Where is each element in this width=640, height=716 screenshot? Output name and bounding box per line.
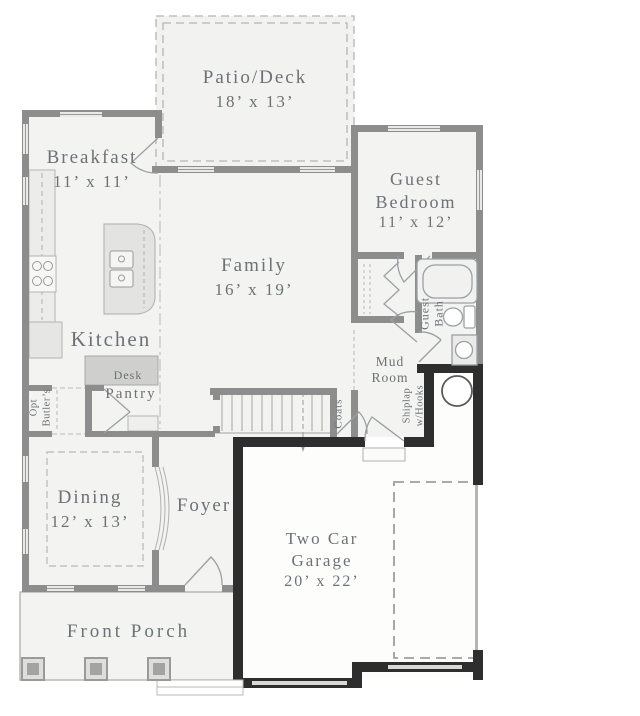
- guest-bedroom-name-1: Guest: [353, 168, 479, 191]
- patio-dims: 18’ x 13’: [156, 91, 354, 113]
- porch-columns: [22, 658, 170, 680]
- guest-bedroom-label: Guest Bedroom 11’ x 12’: [353, 168, 479, 233]
- coats-name: Coats: [332, 394, 345, 434]
- mud-room-name-1: Mud: [351, 354, 429, 370]
- garage-name-1: Two Car: [246, 528, 398, 550]
- garage-dims: 20’ x 22’: [246, 572, 398, 593]
- pantry-shelf: [128, 416, 158, 431]
- guest-bath-name-2: Bath: [432, 289, 446, 337]
- foyer-name: Foyer: [162, 494, 246, 519]
- front-porch-label: Front Porch: [20, 620, 237, 645]
- opt-butlers-name-2: Butler’s: [41, 383, 54, 433]
- patio-name: Patio/Deck: [156, 66, 354, 91]
- dining-dims: 12’ x 13’: [28, 511, 152, 533]
- dining-name: Dining: [28, 486, 152, 511]
- garage-name-2: Garage: [246, 550, 398, 572]
- water-heater: [442, 376, 472, 406]
- patio-label: Patio/Deck 18’ x 13’: [156, 66, 354, 113]
- coats-label: Coats: [332, 394, 345, 434]
- guest-bath-name-1: Guest: [418, 289, 432, 337]
- cooktop: [29, 256, 56, 292]
- guest-bath-label: Guest Bath: [418, 289, 447, 337]
- front-porch-name: Front Porch: [20, 620, 237, 645]
- dining-label: Dining 12’ x 13’: [28, 486, 152, 533]
- family-dims: 16’ x 19’: [158, 279, 350, 301]
- breakfast-label: Breakfast 11’ x 11’: [28, 146, 156, 193]
- garage-stoop: [363, 448, 405, 461]
- garage-door-right: [388, 665, 462, 669]
- pantry-name: Pantry: [102, 385, 160, 405]
- desk-name: Desk: [100, 368, 156, 384]
- garage-label: Two Car Garage 20’ x 22’: [246, 528, 398, 593]
- shiplap-name-2: w/Hooks: [414, 378, 427, 434]
- kitchen-name: Kitchen: [52, 326, 170, 353]
- floor-plan-canvas: Patio/Deck 18’ x 13’ Breakfast 11’ x 11’…: [0, 0, 640, 716]
- garage-door-left: [252, 681, 347, 685]
- desk-label: Desk: [100, 368, 156, 384]
- island-sink: [110, 251, 133, 268]
- family-name: Family: [158, 254, 350, 279]
- breakfast-name: Breakfast: [28, 146, 156, 171]
- opt-butlers-label: Opt Butler’s: [28, 383, 53, 433]
- kitchen-label: Kitchen: [52, 326, 170, 353]
- foyer-label: Foyer: [162, 494, 246, 519]
- shiplap-hooks-label: Shiplap w/Hooks: [401, 378, 426, 434]
- breakfast-dims: 11’ x 11’: [28, 171, 156, 193]
- guest-bedroom-dims: 11’ x 12’: [353, 213, 479, 233]
- guest-bedroom-name-2: Bedroom: [353, 191, 479, 214]
- shiplap-name-1: Shiplap: [401, 378, 414, 434]
- toilet: [464, 306, 475, 328]
- opt-butlers-name-1: Opt: [28, 383, 41, 433]
- family-label: Family 16’ x 19’: [158, 254, 350, 301]
- kitchen-island: [104, 224, 155, 314]
- pantry-label: Pantry: [102, 385, 160, 405]
